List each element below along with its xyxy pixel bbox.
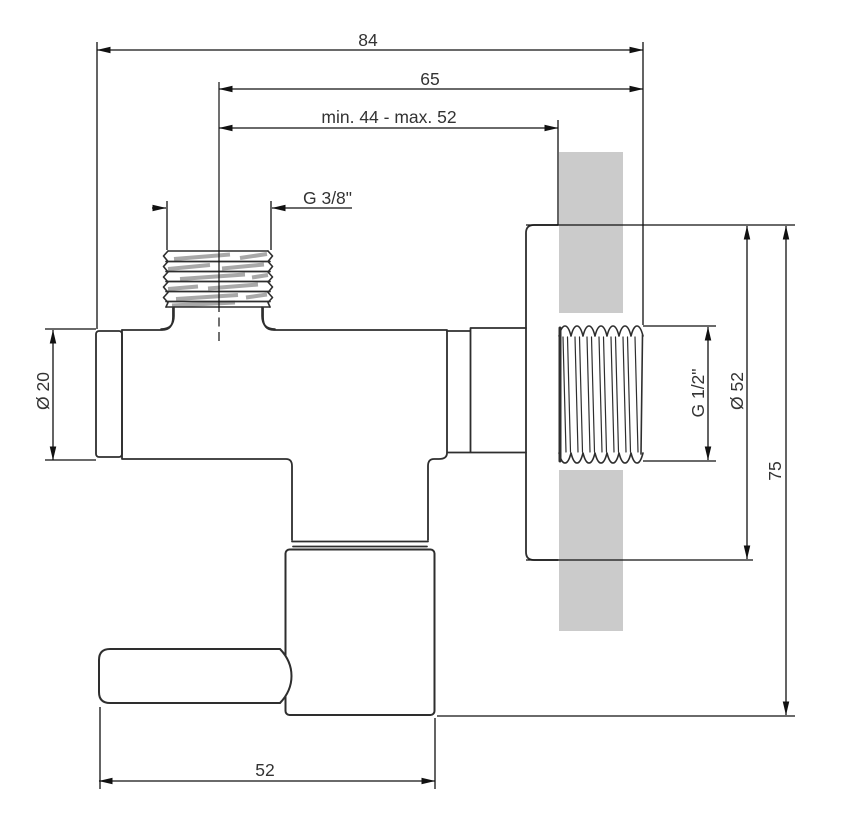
valve-body [96, 308, 526, 715]
label-top-thread: G 3/8" [303, 188, 352, 208]
flange-plate [526, 225, 558, 560]
label-axis-length: 65 [420, 69, 439, 89]
label-inlet-thread: G 1/2" [688, 368, 708, 417]
handle-block [286, 550, 435, 716]
handle-lever [99, 649, 292, 703]
label-outlet-diameter: Ø 20 [33, 372, 53, 410]
dimension-g38 [152, 201, 352, 250]
label-handle-length: 52 [255, 760, 274, 780]
thread-1-2 [559, 326, 643, 463]
label-flange-diameter: Ø 52 [727, 372, 747, 410]
body-top-left [122, 308, 173, 330]
thread-3-8 [161, 251, 275, 329]
inlet-collar [448, 328, 526, 453]
label-overall-height: 75 [765, 461, 785, 480]
label-total-length: 84 [358, 30, 378, 50]
dimension-wall-range [219, 120, 558, 225]
wall-section-lower [559, 470, 623, 631]
bonnet-step [292, 542, 428, 547]
body-bottom-left [122, 330, 292, 540]
wall-section-upper [559, 152, 623, 313]
body-top-right [263, 308, 447, 540]
technical-drawing-page: 84 65 min. 44 - max. 52 G 3/8" Ø 20 G 1/… [0, 0, 868, 824]
label-wall-range: min. 44 - max. 52 [321, 107, 456, 127]
angle-valve-dimension-drawing: 84 65 min. 44 - max. 52 G 3/8" Ø 20 G 1/… [0, 0, 868, 824]
thread-1-2-flanks [563, 337, 638, 452]
outlet-pipe [96, 331, 122, 457]
